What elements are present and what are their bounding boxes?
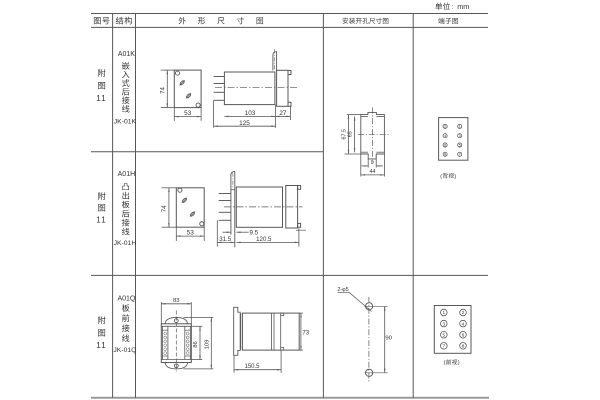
svg-text:44: 44 [370, 169, 376, 175]
svg-text:83: 83 [173, 298, 180, 304]
svg-text:150.5: 150.5 [244, 364, 260, 370]
svg-text:109: 109 [204, 340, 210, 350]
svg-text:2-φ5: 2-φ5 [337, 287, 348, 293]
svg-text:4: 4 [444, 134, 446, 138]
svg-text:2: 2 [462, 310, 465, 315]
svg-text:1: 1 [443, 310, 446, 315]
svg-text:74: 74 [159, 87, 166, 94]
svg-text:6: 6 [462, 332, 465, 337]
svg-text:mm: mm [457, 2, 469, 11]
svg-text:6: 6 [444, 143, 446, 147]
svg-text:125: 125 [239, 120, 250, 127]
svg-text:A01Q: A01Q [117, 295, 135, 302]
svg-text:5: 5 [459, 143, 461, 147]
svg-text:11: 11 [96, 94, 107, 103]
svg-text:11: 11 [96, 341, 107, 350]
svg-text:8: 8 [462, 344, 465, 349]
svg-text:(: ( [444, 360, 446, 366]
svg-text:31.5: 31.5 [219, 236, 231, 243]
svg-text:74: 74 [161, 205, 168, 212]
svg-text:): ) [454, 174, 456, 180]
svg-text:5: 5 [443, 332, 446, 337]
svg-text:73: 73 [302, 331, 309, 337]
svg-text:90: 90 [385, 336, 392, 342]
svg-text:65: 65 [348, 131, 354, 137]
svg-text:86: 86 [193, 341, 199, 348]
svg-text:8: 8 [444, 153, 446, 157]
svg-text:A01H: A01H [118, 171, 136, 178]
svg-text:3: 3 [443, 321, 446, 326]
svg-text:JK-01H: JK-01H [114, 240, 137, 247]
svg-text:(: ( [440, 174, 442, 180]
svg-text:7: 7 [443, 344, 446, 349]
svg-text:9: 9 [371, 160, 374, 166]
svg-text:JK-01Q: JK-01Q [113, 347, 136, 354]
svg-text:11: 11 [96, 215, 107, 224]
svg-text:103: 103 [245, 110, 256, 117]
svg-text:53: 53 [187, 230, 195, 237]
svg-text:120.5: 120.5 [256, 236, 272, 243]
svg-text:): ) [458, 360, 460, 366]
svg-text:7: 7 [459, 153, 461, 157]
svg-text:1: 1 [459, 125, 461, 129]
svg-text:A01K: A01K [118, 51, 135, 58]
svg-text:4: 4 [462, 321, 465, 326]
svg-text:3: 3 [459, 134, 461, 138]
svg-text:67.5: 67.5 [341, 129, 347, 140]
svg-text:JK-01K: JK-01K [114, 118, 137, 125]
svg-text::: : [451, 4, 453, 11]
svg-text:27: 27 [279, 110, 287, 117]
svg-text:2: 2 [444, 125, 446, 129]
svg-text:53: 53 [184, 110, 192, 117]
